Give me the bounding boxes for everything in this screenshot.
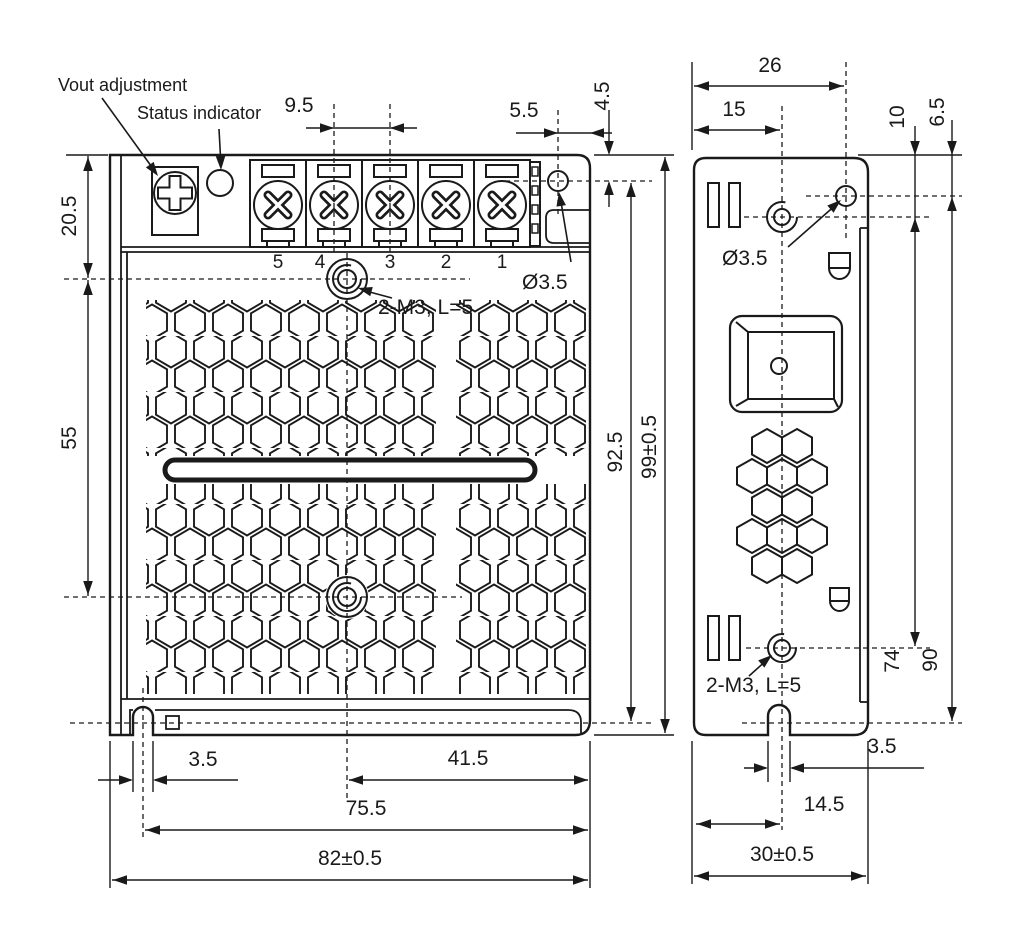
side-threaded-holes-label: 2-M3, L=5 bbox=[706, 674, 801, 697]
dim-center-to-edge: 41.5 bbox=[448, 747, 489, 770]
terminal-number-4: 4 bbox=[315, 252, 326, 273]
dim-thread-spacing: 74 bbox=[881, 649, 904, 673]
terminal-number-2: 2 bbox=[441, 252, 452, 273]
terminal-number-3: 3 bbox=[385, 252, 396, 273]
dim-hole-spacing: 55 bbox=[58, 426, 81, 449]
dim-terminal-pitch: 9.5 bbox=[284, 94, 313, 117]
dim-side-hole-offset: 26 bbox=[758, 54, 781, 77]
dim-overall-width: 82±0.5 bbox=[318, 847, 382, 870]
front-mounting-hole-label: Ø3.5 bbox=[522, 271, 568, 294]
terminal-number-1: 1 bbox=[497, 252, 508, 273]
side-mounting-hole-label: Ø3.5 bbox=[722, 247, 768, 270]
dim-overall-depth: 30±0.5 bbox=[750, 843, 814, 866]
front-vent-pattern bbox=[146, 300, 586, 694]
front-threaded-holes-label: 2-M3, L=5 bbox=[378, 296, 473, 319]
dim-slot-to-edge: 75.5 bbox=[346, 797, 387, 820]
dim-thread-to-top: 10 bbox=[886, 105, 909, 128]
dim-front-slot-width: 3.5 bbox=[188, 748, 217, 771]
dim-side-center-offset: 15 bbox=[722, 98, 745, 121]
dim-side-hole-to-bottom: 90 bbox=[919, 648, 942, 671]
psu-dimension-drawing: Vout adjustment Status indicator 9.5 5.5… bbox=[0, 0, 1024, 941]
vout-adjustment-label: Vout adjustment bbox=[58, 75, 187, 95]
dim-side-slot-width: 3.5 bbox=[867, 735, 896, 758]
dim-hole-to-edge: 5.5 bbox=[509, 99, 538, 122]
dim-hole-to-top: 4.5 bbox=[591, 81, 614, 110]
dim-hole-to-bottom: 92.5 bbox=[604, 432, 627, 473]
dim-overall-height: 99±0.5 bbox=[638, 415, 661, 479]
dim-side-slot-center: 14.5 bbox=[804, 793, 845, 816]
background bbox=[0, 0, 1024, 941]
dim-side-hole-to-top: 6.5 bbox=[926, 97, 949, 126]
drawing-svg: Vout adjustment Status indicator 9.5 5.5… bbox=[0, 0, 1024, 941]
status-indicator-label: Status indicator bbox=[137, 103, 261, 123]
terminal-number-5: 5 bbox=[273, 252, 284, 273]
dim-top-to-upper-hole: 20.5 bbox=[58, 196, 81, 237]
